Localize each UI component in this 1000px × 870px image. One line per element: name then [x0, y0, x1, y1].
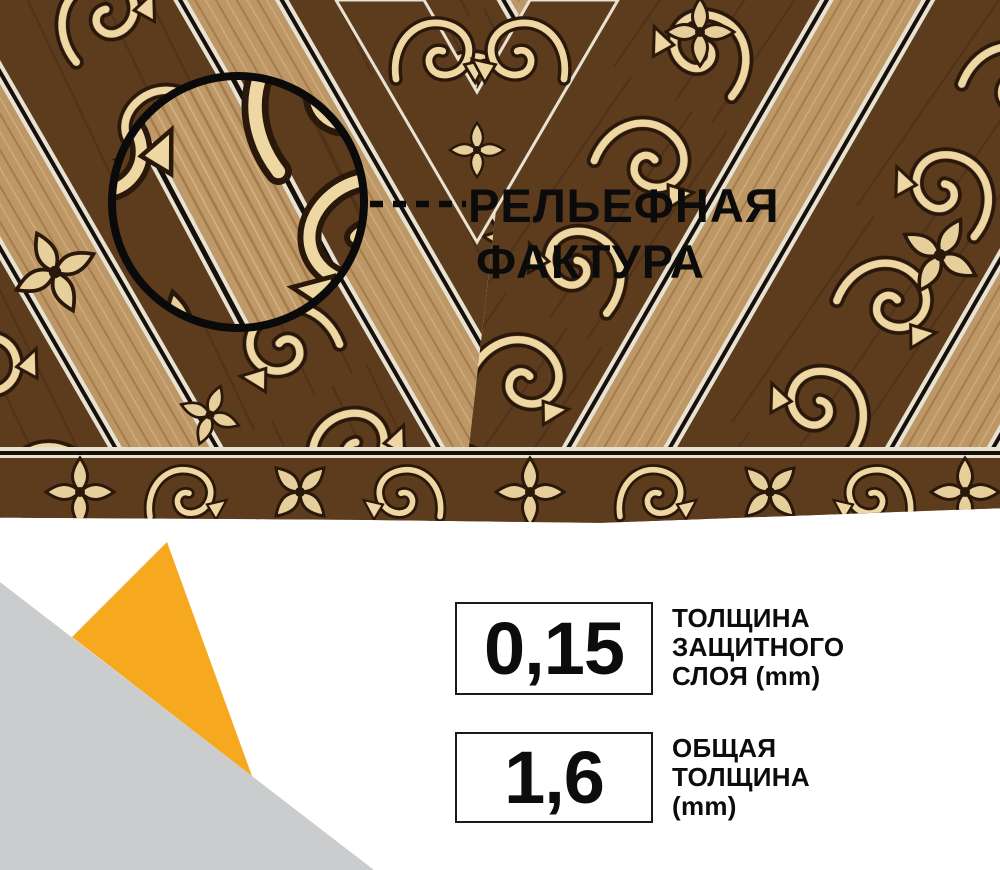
- spec-label-line: (mm): [672, 792, 810, 821]
- spec-label-protective-thickness: ТОЛЩИНА ЗАЩИТНОГО СЛОЯ (mm): [672, 604, 844, 691]
- spec-label-line: ТОЛЩИНА: [672, 763, 810, 792]
- texture-annotation-line1: РЕЛЬЕФНАЯ: [468, 178, 780, 234]
- texture-annotation: РЕЛЬЕФНАЯ ФАКТУРА: [468, 178, 780, 290]
- spec-label-line: ТОЛЩИНА: [672, 604, 844, 633]
- spec-label-line: СЛОЯ (mm): [672, 662, 844, 691]
- flooring-photo: РЕЛЬЕФНАЯ ФАКТУРА: [0, 0, 1000, 525]
- spec-label-line: ОБЩАЯ: [672, 734, 810, 763]
- spec-label-total-thickness: ОБЩАЯ ТОЛЩИНА (mm): [672, 734, 810, 821]
- product-infographic: РЕЛЬЕФНАЯ ФАКТУРА 0,15 ТОЛЩИНА ЗАЩИТНОГО…: [0, 0, 1000, 870]
- value-box-protective-thickness: 0,15: [455, 602, 653, 695]
- texture-annotation-line2: ФАКТУРА: [468, 234, 780, 290]
- bottom-ornament-border: [0, 444, 1000, 525]
- value-box-total-thickness: 1,6: [455, 732, 653, 823]
- spec-label-line: ЗАЩИТНОГО: [672, 633, 844, 662]
